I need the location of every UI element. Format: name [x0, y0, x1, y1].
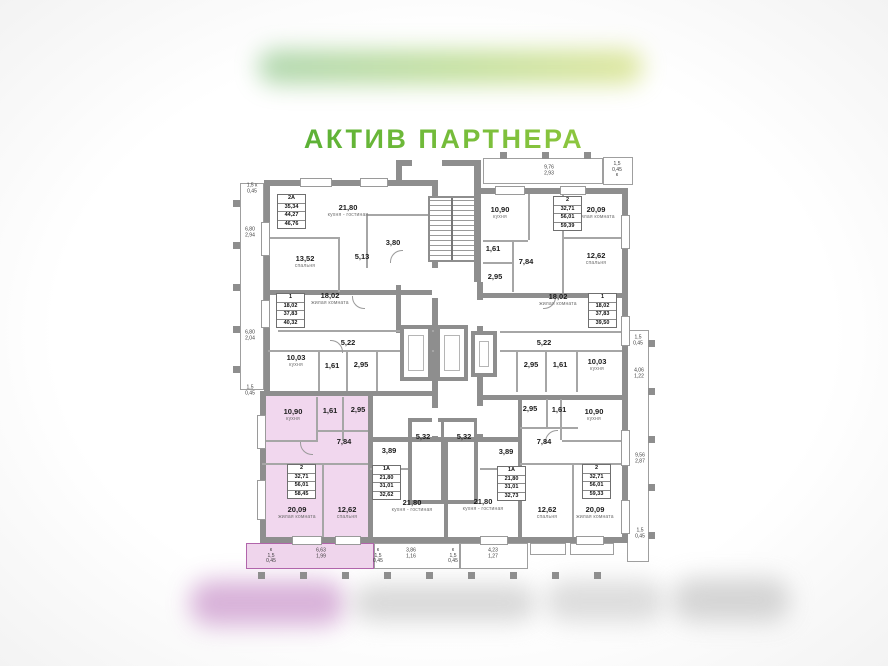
room-label: 20,09жилая комната: [577, 206, 614, 220]
dimension-label: 9,76 2,93: [544, 166, 554, 177]
window: [621, 500, 630, 534]
elevator-cabin: [479, 341, 489, 367]
room-name: кухня - гостиная: [463, 506, 504, 512]
room-name: спальня: [586, 260, 606, 266]
room-area: 3,89: [382, 447, 397, 455]
dimension-label: к 1,5 0,45: [448, 548, 458, 565]
room-area: 1,61: [323, 407, 338, 415]
apartment-type: 2А: [278, 195, 305, 203]
window: [621, 316, 630, 346]
room-area: 10,90: [585, 408, 604, 416]
room-area: 7,84: [537, 438, 552, 446]
apartment-area-total: 59,33: [583, 490, 610, 499]
room-area: 1,61: [552, 406, 567, 414]
room-area: 10,90: [491, 206, 510, 214]
window: [335, 536, 361, 545]
door-opening: [477, 406, 483, 434]
dimension-label: к 1,5 0,45: [373, 548, 383, 565]
room-label: 7,84: [337, 438, 352, 446]
partition: [342, 397, 344, 441]
balcony-bottom-3: [530, 543, 566, 555]
room-label: 20,09жилая комната: [278, 506, 315, 520]
watermark-blur-bottom-gray3: [672, 578, 790, 622]
partition: [512, 240, 514, 292]
room-area: 1,61: [553, 361, 568, 369]
wall: [264, 180, 270, 393]
room-label: 2,95: [488, 273, 503, 281]
window: [300, 178, 332, 187]
room-label: 3,80: [386, 239, 401, 247]
room-label: 21,80кухня - гостиная: [328, 204, 369, 218]
apartment-area: 56,01: [583, 481, 610, 490]
room-label: 12,62спальня: [337, 506, 357, 520]
room-name: жилая комната: [539, 301, 576, 307]
partition: [376, 352, 378, 391]
room-area: 10,90: [284, 408, 303, 416]
room-name: кухня: [287, 362, 306, 368]
apartment-type: 2: [554, 197, 581, 205]
elevator: [471, 331, 497, 377]
wall: [444, 442, 448, 543]
room-label: 7,84: [537, 438, 552, 446]
room-area: 20,09: [278, 506, 315, 514]
room-label: 1,61: [552, 406, 567, 414]
partition: [500, 331, 622, 333]
room-area: 5,13: [355, 253, 370, 261]
room-area: 12,62: [337, 506, 357, 514]
balcony-left: [240, 183, 264, 390]
room-label: 10,90кухня: [585, 408, 604, 422]
apartment-area: 35,34: [278, 203, 305, 212]
apartment-area: 56,01: [288, 481, 315, 490]
facade-tick: [552, 572, 559, 579]
room-area: 1,61: [325, 362, 340, 370]
room-name: спальня: [537, 514, 557, 520]
partition: [562, 440, 622, 442]
apartment-card[interactable]: 1 18,02 37,83 40,32: [276, 293, 305, 328]
room-name: кухня: [588, 366, 607, 372]
window: [292, 536, 322, 545]
apartment-type: 1: [589, 294, 616, 302]
dimension-label: 1,5 0,45: [635, 529, 645, 540]
dimension-label: 6,80 2,04: [245, 331, 255, 342]
window: [261, 222, 270, 256]
apartment-area-total: 39,50: [589, 319, 616, 328]
room-label: 3,89: [499, 448, 514, 456]
facade-tick: [233, 242, 240, 249]
apartment-area-total: 32,73: [498, 492, 525, 501]
room-label: 10,90кухня: [491, 206, 510, 220]
apartment-area: 21,80: [373, 474, 400, 483]
apartment-card[interactable]: 2 32,71 56,01 59,33: [582, 464, 611, 499]
room-area: 20,09: [577, 206, 614, 214]
balcony-bottom-1: [374, 543, 460, 569]
apartment-card-selected[interactable]: 2 32,71 56,01 58,45: [287, 464, 316, 499]
window: [560, 186, 586, 195]
partition: [318, 352, 320, 391]
apartment-area: 32,71: [554, 205, 581, 214]
facade-tick: [594, 572, 601, 579]
dimension-label: 4,06 1,22: [634, 369, 644, 380]
window: [257, 415, 266, 449]
room-name: жилая комната: [311, 300, 348, 306]
wall: [260, 391, 266, 543]
facade-tick: [384, 572, 391, 579]
partition: [520, 427, 578, 429]
room-area: 1,61: [486, 245, 501, 253]
room-area: 18,02: [539, 293, 576, 301]
apartment-card[interactable]: 2А 35,34 44,27 46,76: [277, 194, 306, 229]
watermark-blur-bottom-gray2: [545, 580, 665, 622]
dimension-label: 1,5 0,45: [245, 386, 255, 397]
room-name: спальня: [337, 514, 357, 520]
apartment-area: 32,71: [288, 473, 315, 482]
room-area: 20,09: [576, 506, 613, 514]
room-name: кухня: [491, 214, 510, 220]
window: [576, 536, 604, 545]
apartment-area: 31,01: [373, 482, 400, 491]
room-label: 10,03кухня: [588, 358, 607, 372]
facade-tick: [342, 572, 349, 579]
apartment-area: 44,27: [278, 211, 305, 220]
room-area: 2,95: [488, 273, 503, 281]
room-area: 2,95: [351, 406, 366, 414]
facade-tick: [426, 572, 433, 579]
dimension-label: 6,80 2,94: [245, 228, 255, 239]
apartment-area: 18,02: [589, 302, 616, 311]
apartment-type: 2: [583, 465, 610, 473]
room-label: 10,90кухня: [284, 408, 303, 422]
apartment-area: 56,01: [554, 213, 581, 222]
apartment-card[interactable]: 1 18,02 37,83 39,50: [588, 293, 617, 328]
facade-tick: [584, 152, 591, 159]
dimension-label: 4,23 1,27: [488, 549, 498, 560]
facade-tick: [648, 388, 655, 395]
watermark-blur-top: [258, 50, 643, 84]
apartment-area: 18,02: [277, 302, 304, 311]
room-label: 20,09жилая комната: [576, 506, 613, 520]
apartment-area: 31,01: [498, 483, 525, 492]
partition: [338, 237, 340, 292]
facade-tick: [542, 152, 549, 159]
room-name: кухня: [585, 416, 604, 422]
room-name: жилая комната: [576, 514, 613, 520]
room-label: 5,32: [416, 433, 431, 441]
partition: [322, 463, 324, 537]
room-name: кухня - гостиная: [328, 212, 369, 218]
room-area: 18,02: [311, 292, 348, 300]
partition: [572, 463, 574, 537]
room-label: 2,95: [523, 405, 538, 413]
room-area: 21,80: [328, 204, 369, 212]
watermark-blur-bottom-gray1: [352, 584, 537, 622]
facade-tick: [648, 436, 655, 443]
room-label: 2,95: [351, 406, 366, 414]
partition: [500, 350, 622, 352]
elevator-cabin: [444, 335, 460, 371]
room-area: 3,80: [386, 239, 401, 247]
room-label: 2,95: [524, 361, 539, 369]
wall: [262, 391, 436, 396]
apartment-type: 1: [277, 294, 304, 302]
partition: [366, 214, 432, 216]
wall: [408, 418, 412, 504]
partition: [576, 352, 578, 392]
room-name: кухня - гостиная: [392, 507, 433, 513]
room-label: 21,80кухня - гостиная: [392, 499, 433, 513]
room-area: 21,80: [392, 499, 433, 507]
room-name: спальня: [295, 263, 315, 269]
wall: [264, 180, 438, 186]
apartment-card[interactable]: 2 32,71 56,01 59,39: [553, 196, 582, 231]
room-name: жилая комната: [278, 514, 315, 520]
room-area: 12,62: [586, 252, 606, 260]
dimension-label: 1,5 0,45 к: [612, 162, 622, 179]
dimension-label: 9,56 2,87: [635, 454, 645, 465]
room-area: 12,62: [537, 506, 557, 514]
partition: [528, 194, 530, 240]
facade-tick: [258, 572, 265, 579]
apartment-area: 21,80: [498, 475, 525, 484]
apartment-area-total: 58,45: [288, 490, 315, 499]
apartment-area: 37,83: [589, 310, 616, 319]
apartment-area-total: 46,76: [278, 220, 305, 229]
floorplan-page: АКТИВ ПАРТНЕРА: [0, 0, 888, 666]
room-label: 3,89: [382, 447, 397, 455]
room-label: 1,61: [323, 407, 338, 415]
room-label: 18,02жилая комната: [311, 292, 348, 306]
apartment-area-total: 32,62: [373, 491, 400, 500]
partition: [516, 352, 518, 392]
watermark-blur-bottom-pink: [190, 580, 345, 626]
elevator: [400, 325, 432, 381]
room-area: 2,95: [523, 405, 538, 413]
window: [621, 430, 630, 466]
window: [621, 215, 630, 249]
apartment-type: 2: [288, 465, 315, 473]
balcony-top-right: [483, 158, 603, 184]
room-label: 1,61: [325, 362, 340, 370]
dimension-label: 6,63 1,99: [316, 549, 326, 560]
room-label: 5,13: [355, 253, 370, 261]
staircase-divider: [451, 198, 453, 260]
page-title: АКТИВ ПАРТНЕРА: [0, 124, 888, 155]
room-area: 7,84: [519, 258, 534, 266]
room-name: жилая комната: [577, 214, 614, 220]
apartment-type: 1А: [498, 467, 525, 475]
room-area: 5,22: [341, 339, 356, 347]
window: [257, 480, 266, 520]
door-arc: [352, 296, 365, 309]
apartment-area: 37,83: [277, 310, 304, 319]
window: [480, 536, 508, 545]
room-area: 5,32: [457, 433, 472, 441]
apartment-area-total: 40,32: [277, 319, 304, 328]
room-area: 7,84: [337, 438, 352, 446]
elevator-cabin: [408, 335, 424, 371]
room-area: 5,22: [537, 339, 552, 347]
apartment-type: 1А: [373, 466, 400, 474]
room-label: 5,22: [537, 339, 552, 347]
room-label: 12,62спальня: [586, 252, 606, 266]
facade-tick: [300, 572, 307, 579]
facade-tick: [500, 152, 507, 159]
room-label: 2,95: [354, 361, 369, 369]
room-area: 10,03: [588, 358, 607, 366]
facade-tick: [648, 532, 655, 539]
room-label: 10,03кухня: [287, 354, 306, 368]
partition: [546, 399, 548, 427]
window: [360, 178, 388, 187]
facade-tick: [233, 200, 240, 207]
apartment-card[interactable]: 1А 21,80 31,01 32,73: [497, 466, 526, 501]
facade-tick: [648, 484, 655, 491]
wall: [478, 395, 628, 400]
dimension-label: к 1,5 0,45: [266, 548, 276, 565]
dimension-label: 1,5 0,45: [633, 336, 643, 347]
partition: [346, 352, 348, 391]
partition: [268, 237, 340, 239]
room-label: 18,02жилая комната: [539, 293, 576, 307]
partition: [316, 430, 368, 432]
window: [261, 300, 270, 328]
room-label: 1,61: [486, 245, 501, 253]
room-area: 2,95: [524, 361, 539, 369]
window: [495, 186, 525, 195]
dimension-label: 3,86 1,16: [406, 549, 416, 560]
room-label: 7,84: [519, 258, 534, 266]
partition: [316, 397, 318, 441]
partition: [483, 262, 513, 264]
room-area: 2,95: [354, 361, 369, 369]
room-label: 13,52спальня: [295, 255, 315, 269]
room-label: 1,61: [553, 361, 568, 369]
elevator: [436, 325, 468, 381]
facade-tick: [468, 572, 475, 579]
facade-tick: [233, 284, 240, 291]
facade-tick: [233, 326, 240, 333]
room-label: 5,32: [457, 433, 472, 441]
apartment-area-total: 59,39: [554, 222, 581, 231]
room-area: 13,52: [295, 255, 315, 263]
apartment-card[interactable]: 1А 21,80 31,01 32,62: [372, 465, 401, 500]
wall: [396, 160, 402, 186]
partition: [562, 237, 622, 239]
door-opening: [432, 268, 438, 298]
partition: [483, 240, 528, 242]
wall: [441, 418, 444, 504]
door-arc: [390, 250, 403, 263]
room-area: 10,03: [287, 354, 306, 362]
door-opening: [432, 408, 438, 436]
partition: [545, 352, 547, 392]
room-area: 3,89: [499, 448, 514, 456]
apartment-area: 32,71: [583, 473, 610, 482]
dimension-label: 1,5 к 0,45: [247, 184, 258, 195]
entrance-opening: [412, 159, 442, 167]
door-opening: [477, 300, 483, 326]
room-name: кухня: [284, 416, 303, 422]
facade-tick: [648, 340, 655, 347]
room-label: 5,22: [341, 339, 356, 347]
room-area: 5,32: [416, 433, 431, 441]
room-label: 12,62спальня: [537, 506, 557, 520]
facade-tick: [233, 366, 240, 373]
facade-tick: [510, 572, 517, 579]
